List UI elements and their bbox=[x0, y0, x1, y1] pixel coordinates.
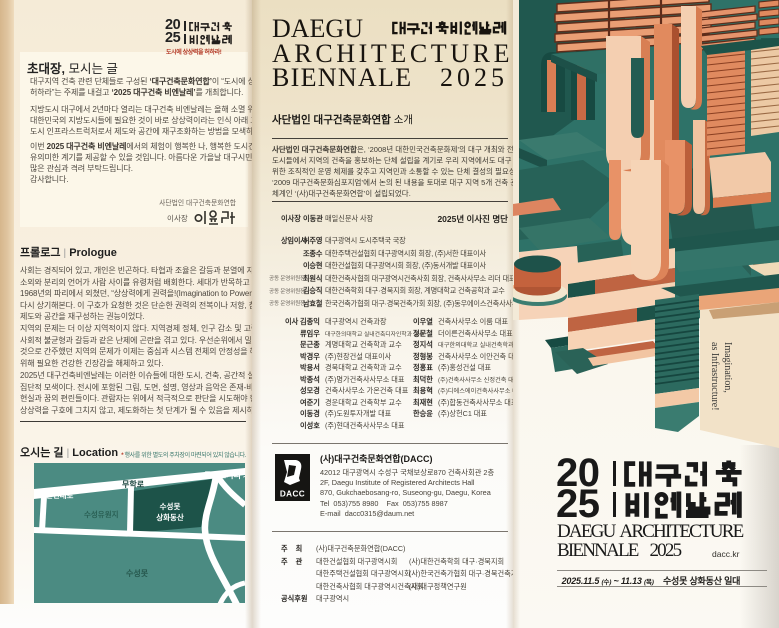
svg-text:as Infrastructure!: as Infrastructure! bbox=[709, 342, 720, 411]
svg-text:Imagination,: Imagination, bbox=[722, 342, 733, 393]
